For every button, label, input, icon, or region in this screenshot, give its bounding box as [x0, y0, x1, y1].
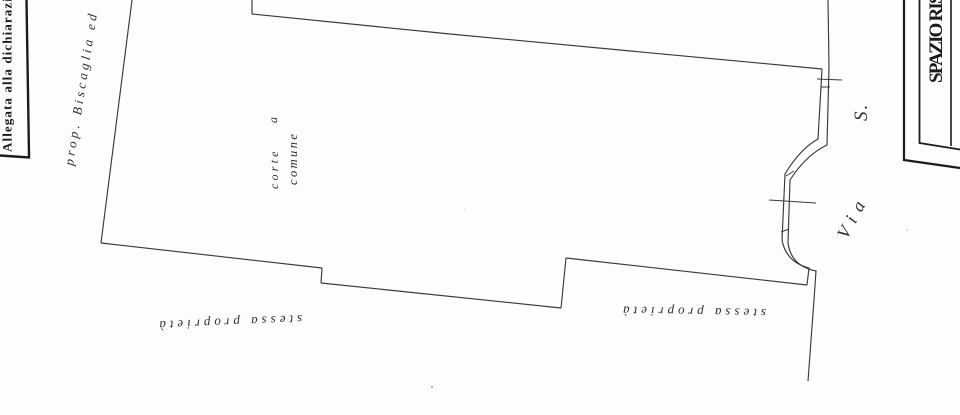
svg-text:SPAZIO RISERVATO A: SPAZIO RISERVATO A — [926, 0, 947, 83]
svg-text:corte: corte — [267, 148, 281, 189]
svg-text:stessa proprietà: stessa proprietà — [619, 303, 766, 321]
svg-text:Allegata alla dichiarazi: Allegata alla dichiarazi — [0, 0, 15, 152]
svg-text:comune: comune — [286, 132, 300, 185]
svg-text:S.: S. — [851, 103, 872, 121]
svg-text:a: a — [266, 117, 280, 123]
